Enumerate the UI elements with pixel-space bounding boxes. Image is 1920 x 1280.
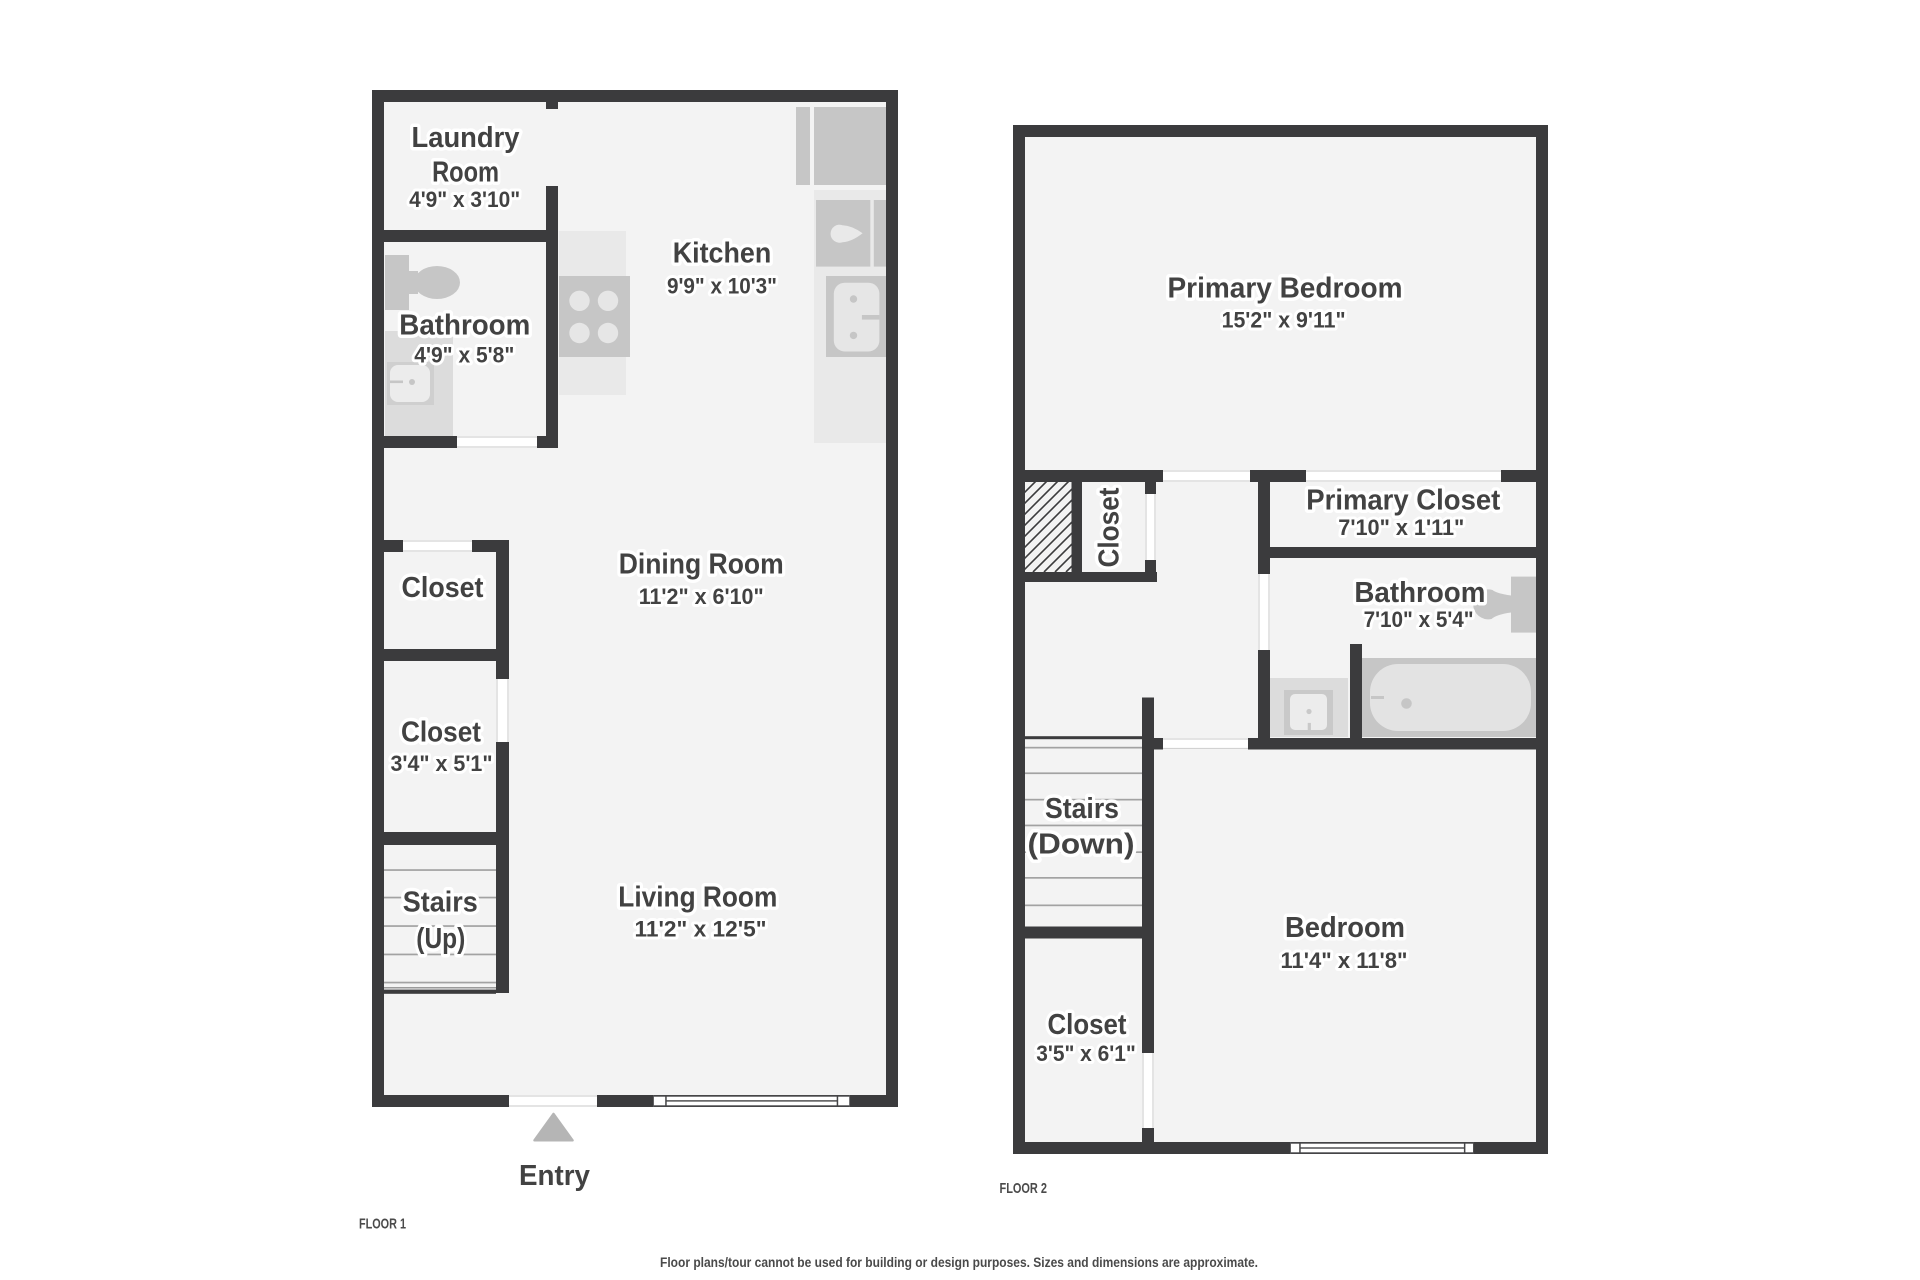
svg-text:4'9" x 3'10": 4'9" x 3'10" [409, 187, 520, 212]
svg-text:7'10" x 5'4": 7'10" x 5'4" [1364, 607, 1474, 632]
svg-text:Entry: Entry [519, 1160, 590, 1192]
svg-text:(Up): (Up) [416, 923, 465, 955]
svg-text:11'4" x 11'8": 11'4" x 11'8" [1281, 948, 1408, 973]
svg-text:Stairs: Stairs [1045, 793, 1119, 825]
svg-text:Bathroom: Bathroom [399, 309, 530, 341]
svg-text:15'2" x 9'11": 15'2" x 9'11" [1222, 308, 1346, 333]
svg-text:FLOOR 1: FLOOR 1 [359, 1216, 406, 1233]
svg-text:Primary Bedroom: Primary Bedroom [1168, 272, 1403, 304]
svg-text:(Down): (Down) [1028, 829, 1135, 861]
svg-text:Closet: Closet [1048, 1009, 1127, 1041]
svg-text:11'2" x 12'5": 11'2" x 12'5" [635, 916, 767, 941]
svg-text:Bathroom: Bathroom [1354, 577, 1485, 609]
svg-text:Living Room: Living Room [618, 881, 777, 913]
svg-text:7'10" x 1'11": 7'10" x 1'11" [1338, 515, 1464, 540]
svg-text:Laundry: Laundry [412, 122, 520, 154]
svg-text:3'5" x 6'1": 3'5" x 6'1" [1036, 1041, 1136, 1066]
svg-text:11'2" x 6'10": 11'2" x 6'10" [639, 584, 764, 609]
svg-text:Closet: Closet [402, 572, 484, 604]
svg-text:Floor plans/tour cannot be use: Floor plans/tour cannot be used for buil… [660, 1254, 1258, 1270]
svg-text:Primary Closet: Primary Closet [1306, 485, 1500, 517]
svg-text:Dining Room: Dining Room [619, 548, 784, 580]
svg-text:Room: Room [432, 157, 499, 189]
svg-text:FLOOR 2: FLOOR 2 [1000, 1180, 1048, 1197]
svg-text:Closet: Closet [1094, 487, 1126, 567]
svg-text:4'9" x 5'8": 4'9" x 5'8" [414, 343, 514, 368]
svg-text:3'4" x 5'1": 3'4" x 5'1" [391, 751, 493, 776]
svg-text:Kitchen: Kitchen [673, 238, 772, 270]
svg-text:Stairs: Stairs [403, 887, 478, 919]
svg-text:9'9" x 10'3": 9'9" x 10'3" [667, 273, 777, 298]
svg-text:Closet: Closet [401, 716, 481, 748]
svg-text:Bedroom: Bedroom [1285, 912, 1405, 944]
